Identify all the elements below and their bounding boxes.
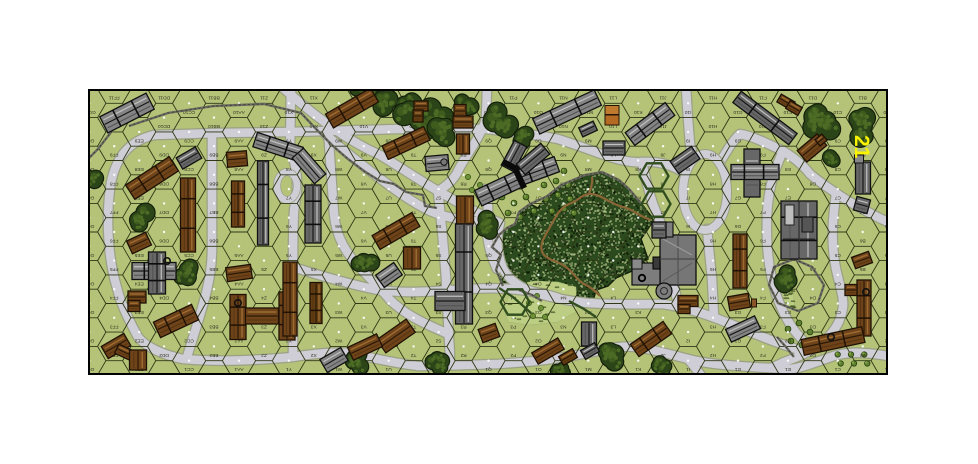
svg-text:S2: S2: [435, 338, 441, 344]
svg-text:N6: N6: [560, 238, 566, 244]
svg-text:W4: W4: [335, 280, 343, 286]
svg-text:EE9: EE9: [134, 137, 143, 143]
svg-text:E1: E1: [785, 366, 791, 372]
svg-text:P11: P11: [509, 95, 518, 101]
svg-text:W7: W7: [335, 195, 343, 201]
svg-text:FF8: FF8: [110, 180, 119, 186]
svg-text:T2: T2: [410, 352, 416, 358]
svg-text:P5: P5: [510, 266, 516, 272]
svg-text:F11: F11: [759, 95, 767, 101]
svg-text:N3: N3: [560, 323, 566, 329]
svg-text:U5: U5: [385, 252, 391, 258]
svg-text:H2: H2: [710, 352, 716, 358]
svg-text:X2: X2: [311, 352, 317, 358]
svg-text:N9: N9: [560, 152, 566, 158]
svg-text:J9: J9: [660, 152, 665, 158]
svg-text:AA4: AA4: [234, 280, 243, 286]
svg-text:Y7: Y7: [286, 195, 292, 201]
svg-text:Q5: Q5: [485, 252, 492, 258]
svg-text:EE2: EE2: [134, 338, 143, 344]
svg-text:BB9: BB9: [209, 152, 218, 158]
svg-text:FF9: FF9: [110, 152, 119, 158]
svg-text:BB3: BB3: [209, 323, 218, 329]
svg-text:Y1: Y1: [286, 366, 292, 372]
svg-text:C5: C5: [834, 252, 840, 258]
svg-text:M8: M8: [585, 166, 592, 172]
svg-text:L3: L3: [610, 323, 616, 329]
svg-text:O5: O5: [535, 252, 542, 258]
svg-text:O2: O2: [535, 338, 542, 344]
svg-text:H10: H10: [708, 123, 717, 129]
svg-text:N4: N4: [560, 295, 566, 301]
svg-text:S5: S5: [435, 252, 441, 258]
svg-text:I2: I2: [686, 338, 690, 344]
svg-text:E7: E7: [785, 195, 791, 201]
svg-text:K5: K5: [635, 252, 641, 258]
svg-text:C10: C10: [833, 109, 842, 115]
svg-text:V4: V4: [361, 295, 367, 301]
svg-text:R2: R2: [460, 352, 466, 358]
svg-text:R8: R8: [460, 180, 466, 186]
svg-text:FF3: FF3: [110, 323, 119, 329]
svg-text:V8: V8: [361, 180, 367, 186]
svg-text:U7: U7: [385, 195, 391, 201]
svg-text:Z5: Z5: [261, 266, 267, 272]
svg-text:K3: K3: [635, 309, 641, 315]
svg-text:V3: V3: [361, 323, 367, 329]
svg-text:Q4: Q4: [485, 280, 492, 286]
svg-text:FF6: FF6: [110, 238, 119, 244]
svg-text:O9: O9: [535, 137, 542, 143]
svg-text:B6: B6: [859, 238, 865, 244]
svg-text:Z2: Z2: [261, 352, 267, 358]
svg-text:AA1: AA1: [234, 366, 243, 372]
svg-text:H3: H3: [710, 323, 716, 329]
svg-text:X11: X11: [309, 95, 318, 101]
svg-text:P6: P6: [510, 238, 516, 244]
svg-text:F8: F8: [760, 180, 766, 186]
svg-text:E2: E2: [785, 338, 791, 344]
svg-text:F2: F2: [760, 352, 766, 358]
svg-text:U8: U8: [385, 166, 391, 172]
svg-text:BB5: BB5: [209, 266, 218, 272]
svg-text:M6: M6: [585, 223, 592, 229]
svg-text:W5: W5: [335, 252, 343, 258]
svg-text:P2: P2: [510, 352, 516, 358]
svg-text:BB10: BB10: [208, 123, 220, 129]
svg-text:M1: M1: [585, 366, 592, 372]
svg-text:DD7: DD7: [159, 209, 169, 215]
svg-text:H11: H11: [708, 95, 717, 101]
svg-text:FF7: FF7: [110, 209, 119, 215]
svg-text:M9: M9: [585, 137, 592, 143]
svg-text:O6: O6: [535, 223, 542, 229]
svg-text:I6: I6: [686, 223, 690, 229]
svg-text:G10: G10: [733, 109, 742, 115]
svg-text:H5: H5: [710, 266, 716, 272]
svg-text:F9: F9: [760, 152, 766, 158]
svg-text:L8: L8: [610, 180, 616, 186]
svg-text:Q9: Q9: [485, 137, 492, 143]
svg-text:DD2: DD2: [159, 352, 169, 358]
svg-text:N11: N11: [559, 95, 568, 101]
svg-text:W8: W8: [335, 166, 343, 172]
svg-text:DD4: DD4: [159, 295, 169, 301]
svg-text:H9: H9: [710, 152, 716, 158]
svg-text:V10: V10: [359, 123, 368, 129]
svg-text:T4: T4: [410, 295, 416, 301]
svg-text:T8: T8: [410, 180, 416, 186]
svg-text:T6: T6: [410, 238, 416, 244]
svg-text:AA9: AA9: [234, 137, 243, 143]
svg-text:G9: G9: [734, 137, 741, 143]
svg-text:L11: L11: [609, 95, 617, 101]
svg-text:21: 21: [850, 135, 873, 159]
svg-text:M5: M5: [585, 252, 592, 258]
svg-text:S4: S4: [435, 280, 441, 286]
svg-text:G1: G1: [734, 366, 741, 372]
svg-text:CC2: CC2: [184, 338, 194, 344]
svg-text:D4: D4: [809, 295, 815, 301]
svg-text:BB7: BB7: [209, 209, 218, 215]
svg-text:Y6: Y6: [286, 223, 292, 229]
svg-text:L6: L6: [610, 238, 616, 244]
svg-text:FF4: FF4: [110, 295, 119, 301]
svg-text:I1: I1: [686, 366, 690, 372]
svg-text:K10: K10: [634, 109, 643, 115]
svg-text:X5: X5: [311, 266, 317, 272]
svg-text:H7: H7: [710, 209, 716, 215]
svg-text:C1: C1: [834, 366, 840, 372]
svg-text:F5: F5: [760, 266, 766, 272]
svg-text:Z9: Z9: [261, 152, 267, 158]
svg-text:Q1: Q1: [485, 366, 492, 372]
svg-text:CC9: CC9: [184, 137, 194, 143]
svg-text:BB2: BB2: [209, 352, 218, 358]
svg-text:G7: G7: [734, 195, 741, 201]
svg-text:G6: G6: [734, 223, 741, 229]
svg-text:W2: W2: [335, 338, 343, 344]
svg-text:H4: H4: [710, 295, 716, 301]
svg-text:BB6: BB6: [209, 238, 218, 244]
svg-text:Q3: Q3: [485, 309, 492, 315]
svg-text:W9: W9: [335, 137, 343, 143]
svg-text:D11: D11: [808, 95, 817, 101]
svg-text:CC1: CC1: [184, 366, 194, 372]
svg-text:BB11: BB11: [208, 95, 220, 101]
svg-text:Z10: Z10: [260, 123, 269, 129]
svg-text:F6: F6: [760, 238, 766, 244]
svg-text:K1: K1: [635, 366, 641, 372]
svg-text:E3: E3: [785, 309, 791, 315]
svg-text:DD10: DD10: [158, 123, 171, 129]
svg-text:P7: P7: [510, 209, 516, 215]
svg-text:EE4: EE4: [134, 280, 143, 286]
svg-text:DD9: DD9: [159, 152, 169, 158]
svg-text:I9: I9: [686, 137, 690, 143]
svg-text:Y8: Y8: [286, 166, 292, 172]
svg-text:AA5: AA5: [234, 252, 243, 258]
svg-text:S7: S7: [435, 195, 441, 201]
svg-text:V6: V6: [361, 238, 367, 244]
svg-text:BB4: BB4: [209, 295, 218, 301]
svg-text:L5: L5: [610, 266, 616, 272]
svg-text:Q8: Q8: [485, 166, 492, 172]
svg-text:AA10: AA10: [233, 109, 245, 115]
svg-text:Z11: Z11: [260, 95, 268, 101]
svg-text:CC5: CC5: [184, 252, 194, 258]
svg-text:D3: D3: [809, 323, 815, 329]
svg-text:Z4: Z4: [261, 295, 267, 301]
svg-text:O3: O3: [535, 309, 542, 315]
svg-text:FF11: FF11: [108, 95, 119, 101]
svg-text:V7: V7: [361, 209, 367, 215]
svg-text:B2: B2: [859, 352, 865, 358]
svg-text:S6: S6: [435, 223, 441, 229]
svg-text:F4: F4: [760, 295, 766, 301]
svg-text:E8: E8: [785, 166, 791, 172]
svg-text:C7: C7: [834, 195, 840, 201]
svg-text:O4: O4: [535, 280, 542, 286]
svg-text:I10: I10: [684, 109, 691, 115]
svg-text:EE8: EE8: [134, 166, 143, 172]
svg-text:L7: L7: [610, 209, 616, 215]
svg-text:F7: F7: [760, 209, 766, 215]
svg-text:P3: P3: [510, 323, 516, 329]
svg-text:X3: X3: [311, 323, 317, 329]
svg-text:B11: B11: [858, 95, 867, 101]
svg-text:L4: L4: [610, 295, 616, 301]
svg-text:FF5: FF5: [110, 266, 119, 272]
svg-text:J11: J11: [659, 95, 667, 101]
svg-text:DD6: DD6: [159, 238, 169, 244]
svg-text:K8: K8: [635, 166, 641, 172]
svg-text:BB8: BB8: [209, 180, 218, 186]
svg-text:T9: T9: [410, 152, 416, 158]
svg-text:U3: U3: [385, 309, 391, 315]
svg-text:W6: W6: [335, 223, 343, 229]
svg-text:C6: C6: [834, 223, 840, 229]
svg-text:DD11: DD11: [158, 95, 170, 101]
svg-text:K6: K6: [635, 223, 641, 229]
svg-text:C3: C3: [834, 309, 840, 315]
svg-text:U1: U1: [385, 366, 391, 372]
svg-text:W3: W3: [335, 309, 343, 315]
svg-text:C4: C4: [834, 280, 840, 286]
svg-text:H6: H6: [710, 238, 716, 244]
svg-text:I7: I7: [686, 195, 690, 201]
svg-text:V9: V9: [361, 152, 367, 158]
svg-text:O1: O1: [535, 366, 542, 372]
svg-text:D8: D8: [809, 180, 815, 186]
svg-text:Y5: Y5: [286, 252, 292, 258]
svg-text:H8: H8: [710, 180, 716, 186]
